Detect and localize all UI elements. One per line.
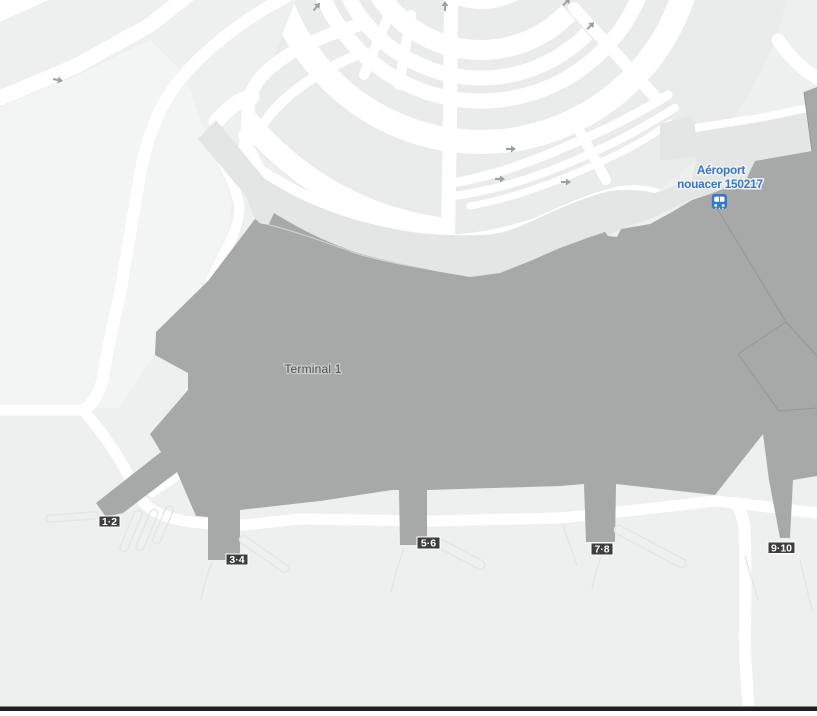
svg-text:9·10: 9·10 (771, 543, 792, 555)
svg-text:Aéroport: Aéroport (697, 163, 745, 177)
svg-text:nouacer 150217: nouacer 150217 (677, 177, 763, 191)
svg-text:1·2: 1·2 (102, 516, 117, 528)
svg-text:3·4: 3·4 (229, 554, 244, 566)
svg-text:7·8: 7·8 (594, 544, 609, 556)
svg-text:5·6: 5·6 (421, 538, 436, 550)
svg-text:Terminal 1: Terminal 1 (284, 362, 341, 376)
